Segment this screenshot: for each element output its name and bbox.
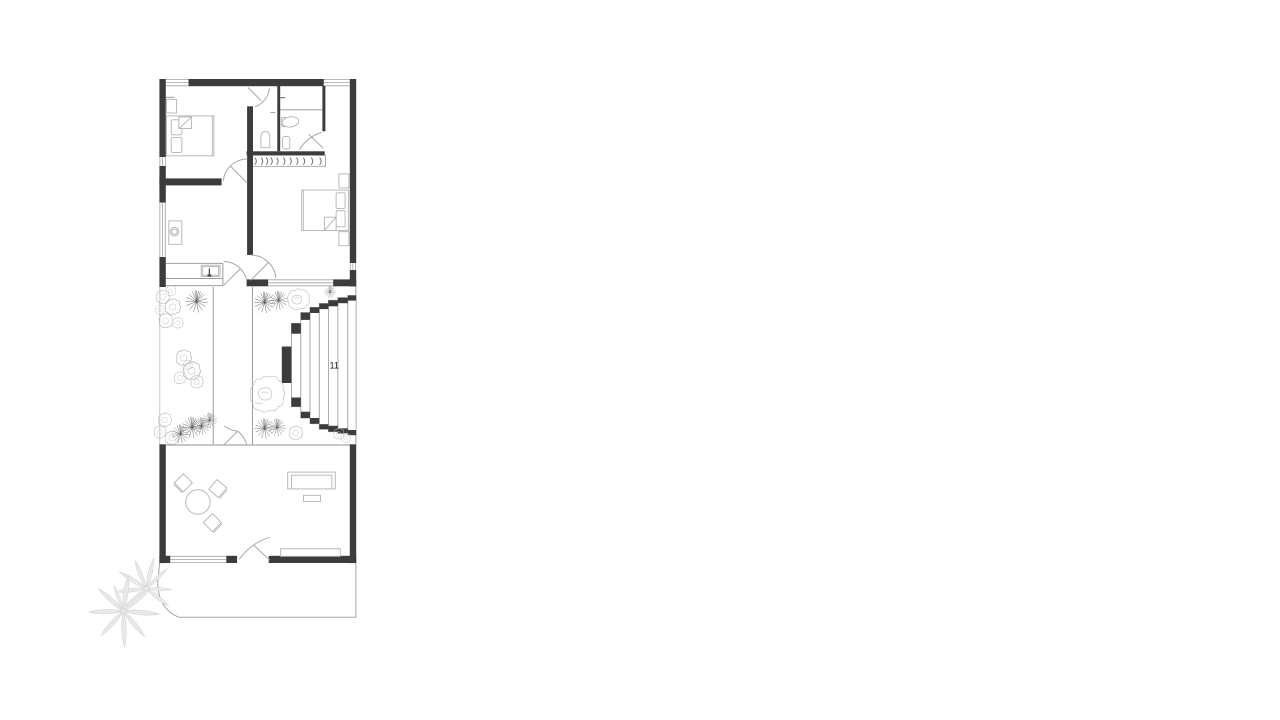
svg-text:11: 11 — [330, 361, 340, 371]
